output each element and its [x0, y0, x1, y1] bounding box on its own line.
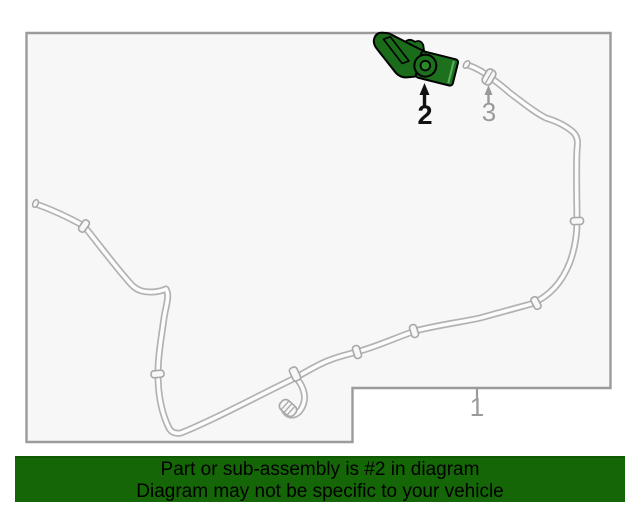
callout-2-label[interactable]: 2: [417, 100, 432, 130]
tube-clip: [570, 217, 583, 224]
callout-1-label[interactable]: 1: [470, 392, 484, 422]
parts-catalog-view: 2 3 1 Part or sub-assembly is #2 in diag…: [0, 0, 640, 512]
parts-diagram-canvas: 2 3 1: [0, 0, 640, 512]
notice-banner: Part or sub-assembly is #2 in diagram Di…: [15, 456, 625, 502]
banner-line-2: Diagram may not be specific to your vehi…: [15, 481, 625, 503]
callout-3-label[interactable]: 3: [482, 97, 496, 127]
callout-1: 1: [470, 389, 484, 422]
tube-clip: [151, 370, 165, 378]
diagram-outline: [27, 33, 611, 442]
banner-line-1: Part or sub-assembly is #2 in diagram: [15, 459, 625, 481]
